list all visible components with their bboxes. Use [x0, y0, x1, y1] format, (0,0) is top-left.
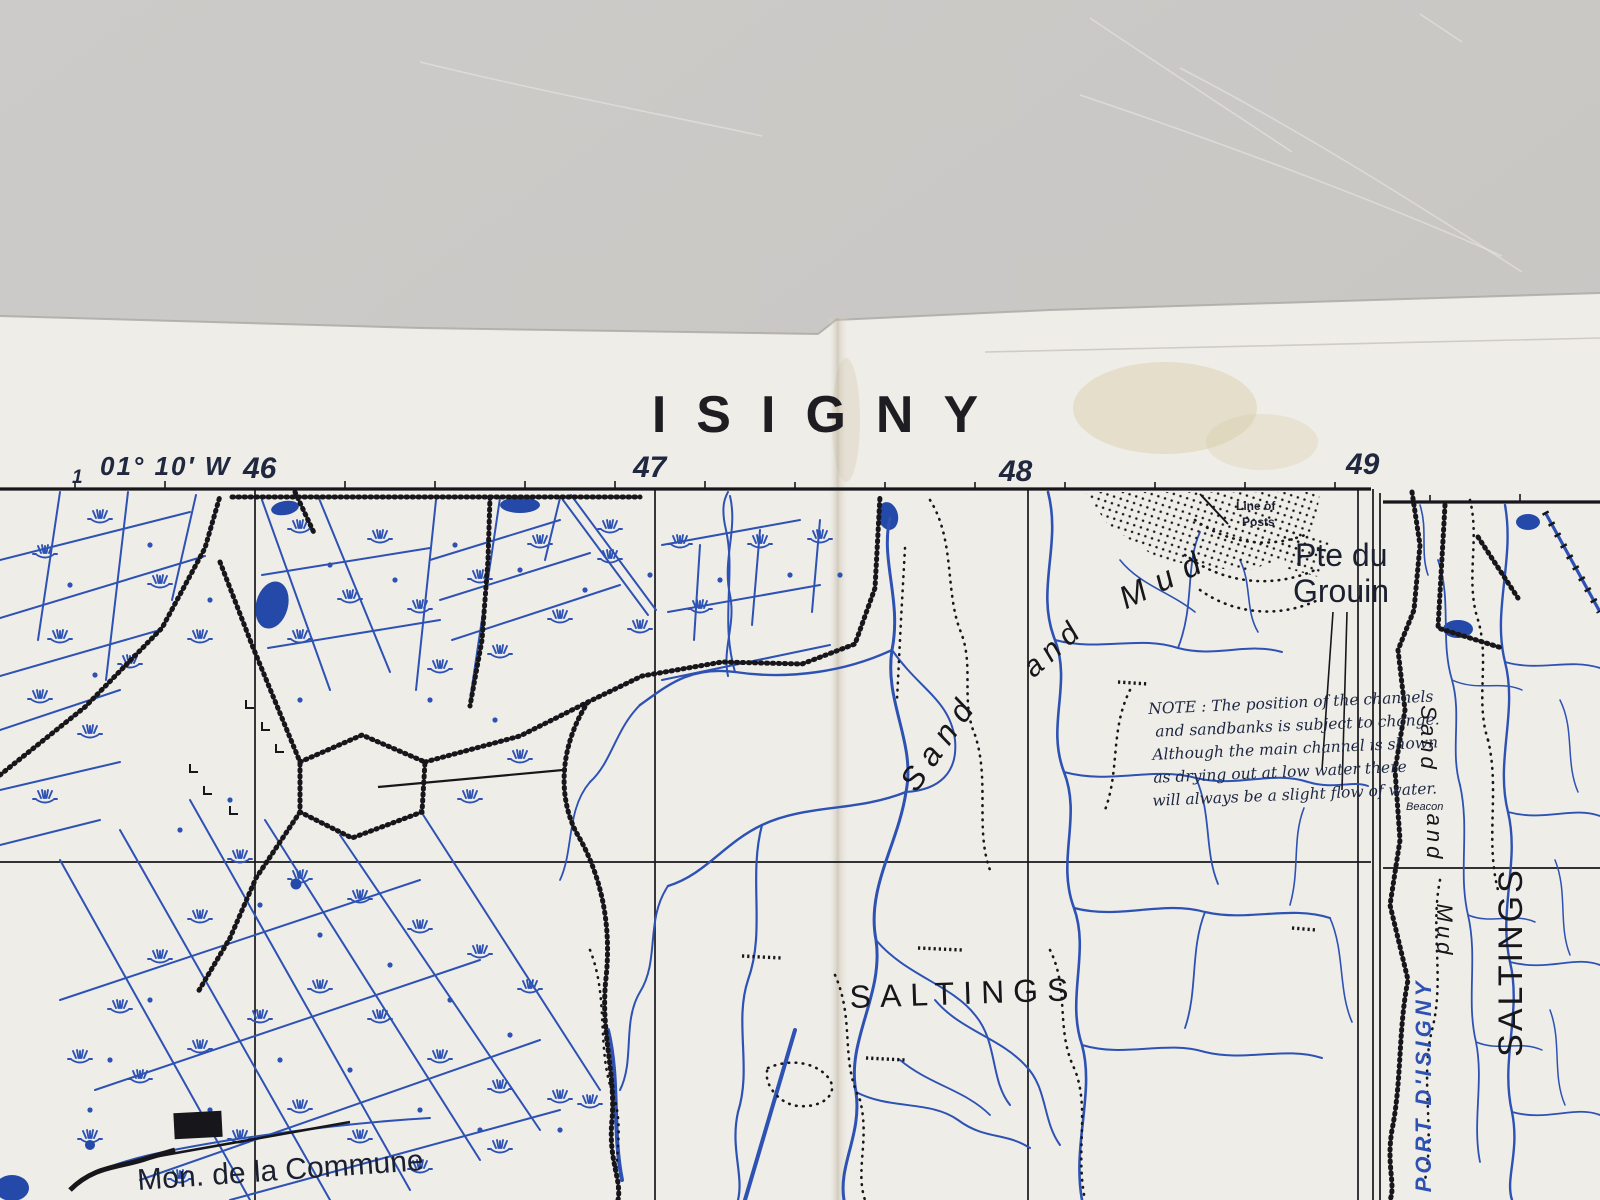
coordinate-label: 01° 10′ W: [100, 451, 232, 481]
grid-number-46: 46: [242, 452, 277, 485]
right-saltings-label: SALTINGS: [1492, 867, 1530, 1057]
fold-crease: [828, 318, 850, 1200]
grid-number-47: 47: [632, 451, 668, 484]
stain: [1206, 414, 1318, 470]
line-of-posts-label-1: Line of: [1236, 499, 1276, 513]
margin-tick-label: 1: [72, 467, 83, 488]
adjoining-sheet-name-label: PORT D'ISIGNY: [1411, 978, 1436, 1193]
map-scene: ISIGNY 1 01° 10′ W 46 47 48 49 Line of P…: [0, 0, 1600, 1200]
pte-du-grouin-label-2: Grouin: [1293, 573, 1389, 609]
note-block: NOTE : The position of the channels and …: [1147, 687, 1443, 810]
map-title: ISIGNY: [652, 386, 1008, 444]
grid-number-48: 48: [998, 455, 1033, 488]
photo-of-map: ISIGNY 1 01° 10′ W 46 47 48 49 Line of P…: [0, 0, 1600, 1200]
right-margin-and-label: and: [1422, 814, 1447, 863]
line-of-posts-label-2: Posts: [1242, 515, 1275, 529]
pte-du-grouin-label-1: Pte du: [1295, 537, 1388, 573]
beacon-label: Beacon: [1406, 801, 1443, 813]
right-margin-sand-label: Sand: [1416, 705, 1441, 772]
right-margin-mud-label: Mud: [1432, 904, 1457, 959]
grid-number-49: 49: [1345, 448, 1380, 481]
building: [173, 1111, 222, 1139]
